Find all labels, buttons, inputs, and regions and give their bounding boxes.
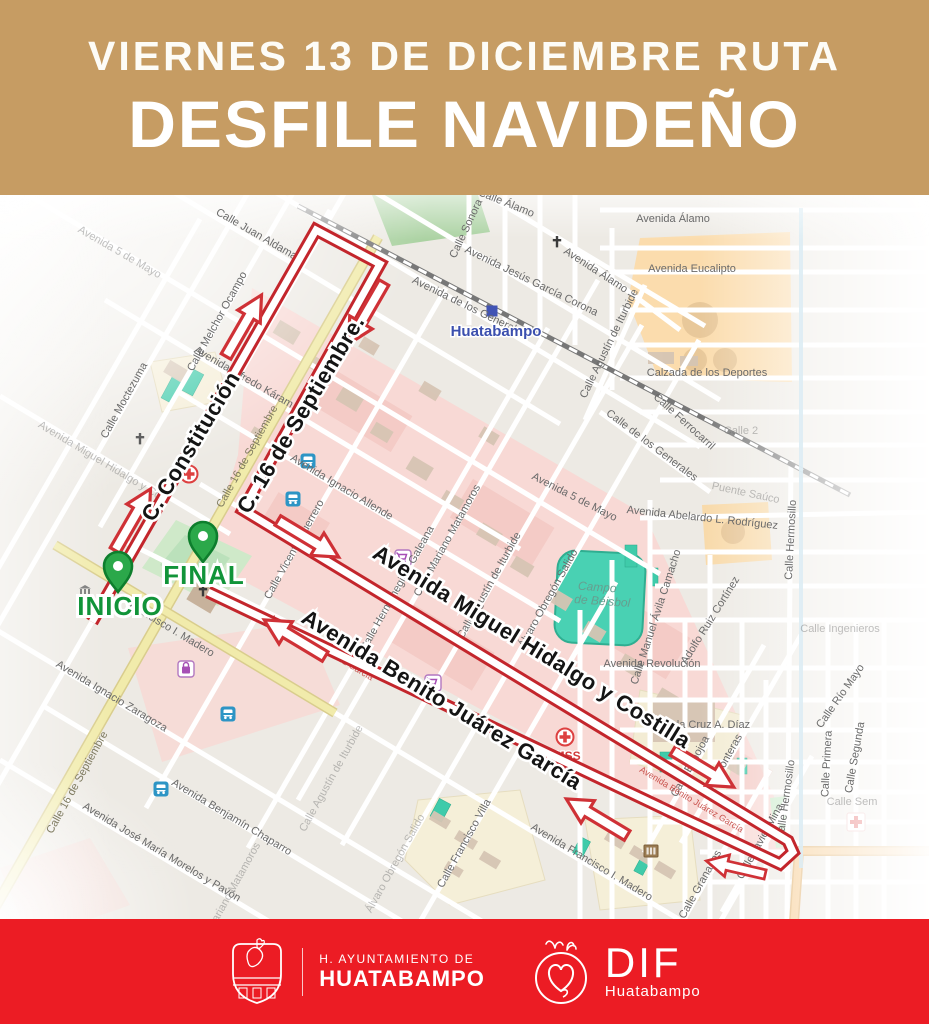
ayuntamiento-crest-logo	[228, 938, 286, 1006]
bank-icon	[644, 845, 658, 857]
ayuntamiento-line1: H. AYUNTAMIENTO DE	[319, 952, 485, 966]
route-map: Avenida 5 de MayoCalle Juan AldamaCalle …	[0, 195, 929, 919]
bus-icon	[221, 707, 236, 722]
street-label: Calle Sem	[827, 796, 878, 808]
footer-bar: H. AYUNTAMIENTO DE HUATABAMPO DIF Huatab…	[0, 919, 929, 1024]
street-label: Avenida Eucalipto	[648, 263, 736, 275]
header-subtitle: VIERNES 13 DE DICIEMBRE RUTA	[88, 33, 841, 80]
bag-icon	[178, 661, 194, 677]
map-canvas: Avenida 5 de MayoCalle Juan AldamaCalle …	[0, 195, 929, 919]
dif-sub-label: Huatabampo	[605, 983, 701, 1000]
logo-divider	[302, 948, 303, 996]
header-title: DESFILE NAVIDEÑO	[128, 86, 801, 162]
inicio-label: INICIO	[77, 591, 162, 621]
final-label: FINAL	[163, 560, 245, 590]
ayuntamiento-block: H. AYUNTAMIENTO DE HUATABAMPO	[228, 938, 485, 1006]
medcross-icon	[557, 729, 574, 746]
street-label: Huatabampo	[451, 323, 542, 340]
street-label: Avenida Álamo	[636, 212, 710, 225]
header-banner: VIERNES 13 DE DICIEMBRE RUTA DESFILE NAV…	[0, 0, 929, 195]
dif-heart-logo	[529, 936, 593, 1008]
street-label: Avenida Revolución	[603, 658, 700, 670]
dif-block: DIF Huatabampo	[529, 936, 701, 1008]
ayuntamiento-line2: HUATABAMPO	[319, 966, 485, 992]
street-label: Calle Ingenieros	[800, 623, 880, 635]
dif-label: DIF	[605, 943, 701, 983]
street-label: Calle 2	[724, 425, 758, 437]
street-label: Calzada de los Deportes	[647, 367, 768, 379]
